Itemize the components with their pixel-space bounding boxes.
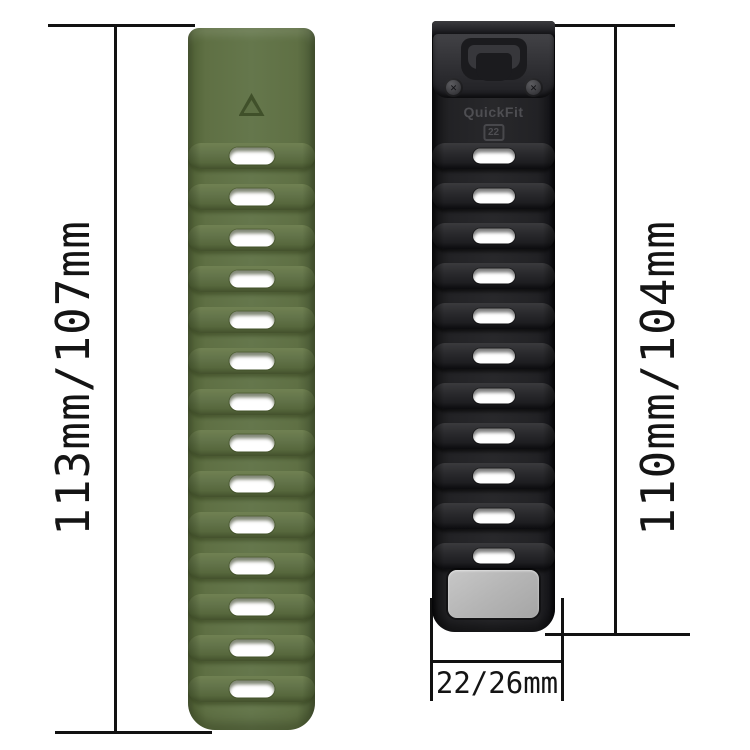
left-dim-top-tick xyxy=(48,24,195,27)
band-slot-hole xyxy=(229,640,274,657)
band-slot-hole xyxy=(473,309,515,324)
band-slot-hole xyxy=(229,394,274,411)
screw-icon: ✕ xyxy=(524,78,543,97)
band-ridge xyxy=(188,553,315,579)
left-dim-bottom-tick xyxy=(55,731,212,734)
band-slot-hole xyxy=(473,189,515,204)
band-slot-hole xyxy=(229,558,274,575)
band-ridge xyxy=(432,263,555,289)
band-ridge xyxy=(188,512,315,538)
band-ridge xyxy=(432,463,555,489)
green-band-ridges xyxy=(188,143,315,717)
band-slot-hole xyxy=(229,599,274,616)
band-ridge xyxy=(432,503,555,529)
connector-body: ✕ ✕ xyxy=(433,34,554,98)
product-dimension-diagram: 113mm/107mm 110mm/104mm 22/26mm ✕ ✕ Quic… xyxy=(0,0,750,750)
band-slot-hole xyxy=(473,509,515,524)
band-ridge xyxy=(188,143,315,169)
band-slot-hole xyxy=(473,469,515,484)
black-band-ridges xyxy=(432,143,555,583)
band-ridge xyxy=(188,184,315,210)
band-slot-hole xyxy=(229,271,274,288)
band-slot-hole xyxy=(229,435,274,452)
quickfit-brand-label: QuickFit xyxy=(432,104,555,120)
green-watch-band xyxy=(188,28,315,730)
left-dim-vertical-line xyxy=(114,24,117,734)
band-ridge xyxy=(188,348,315,374)
band-slot-hole xyxy=(473,429,515,444)
band-ridge xyxy=(432,383,555,409)
band-slot-hole xyxy=(229,148,274,165)
band-ridge xyxy=(432,143,555,169)
right-dim-bottom-tick xyxy=(545,633,690,636)
band-slot-hole xyxy=(229,517,274,534)
band-slot-hole xyxy=(229,189,274,206)
band-slot-hole xyxy=(473,549,515,564)
right-dim-vertical-line xyxy=(614,24,617,636)
metal-plate xyxy=(448,570,539,618)
band-slot-hole xyxy=(229,230,274,247)
band-ridge xyxy=(188,471,315,497)
bottom-dimension-label: 22/26mm xyxy=(422,666,572,700)
right-dimension-label: 110mm/104mm xyxy=(631,218,685,538)
band-ridge xyxy=(432,183,555,209)
band-ridge xyxy=(188,430,315,456)
band-slot-hole xyxy=(473,269,515,284)
quickfit-connector: ✕ ✕ xyxy=(432,21,555,98)
band-slot-hole xyxy=(229,312,274,329)
band-ridge xyxy=(188,594,315,620)
band-slot-hole xyxy=(229,476,274,493)
band-ridge xyxy=(188,225,315,251)
band-slot-hole xyxy=(473,389,515,404)
band-slot-hole xyxy=(229,353,274,370)
band-ridge xyxy=(188,307,315,333)
band-slot-hole xyxy=(473,149,515,164)
band-ridge xyxy=(188,635,315,661)
bottom-dim-horizontal-line xyxy=(430,660,563,663)
band-slot-hole xyxy=(229,681,274,698)
band-ridge xyxy=(432,303,555,329)
connector-latch xyxy=(461,38,527,80)
black-watch-band: ✕ ✕ QuickFit 22 xyxy=(432,21,555,632)
band-slot-hole xyxy=(473,349,515,364)
screw-icon: ✕ xyxy=(444,78,463,97)
band-ridge xyxy=(188,266,315,292)
band-slot-hole xyxy=(473,229,515,244)
band-ridge xyxy=(432,223,555,249)
band-ridge xyxy=(432,343,555,369)
quickfit-size-badge: 22 xyxy=(483,124,504,141)
band-ridge xyxy=(432,543,555,569)
left-dimension-label: 113mm/107mm xyxy=(46,218,100,538)
band-ridge xyxy=(188,676,315,702)
triangle-icon xyxy=(239,93,265,116)
band-ridge xyxy=(432,423,555,449)
band-ridge xyxy=(188,389,315,415)
